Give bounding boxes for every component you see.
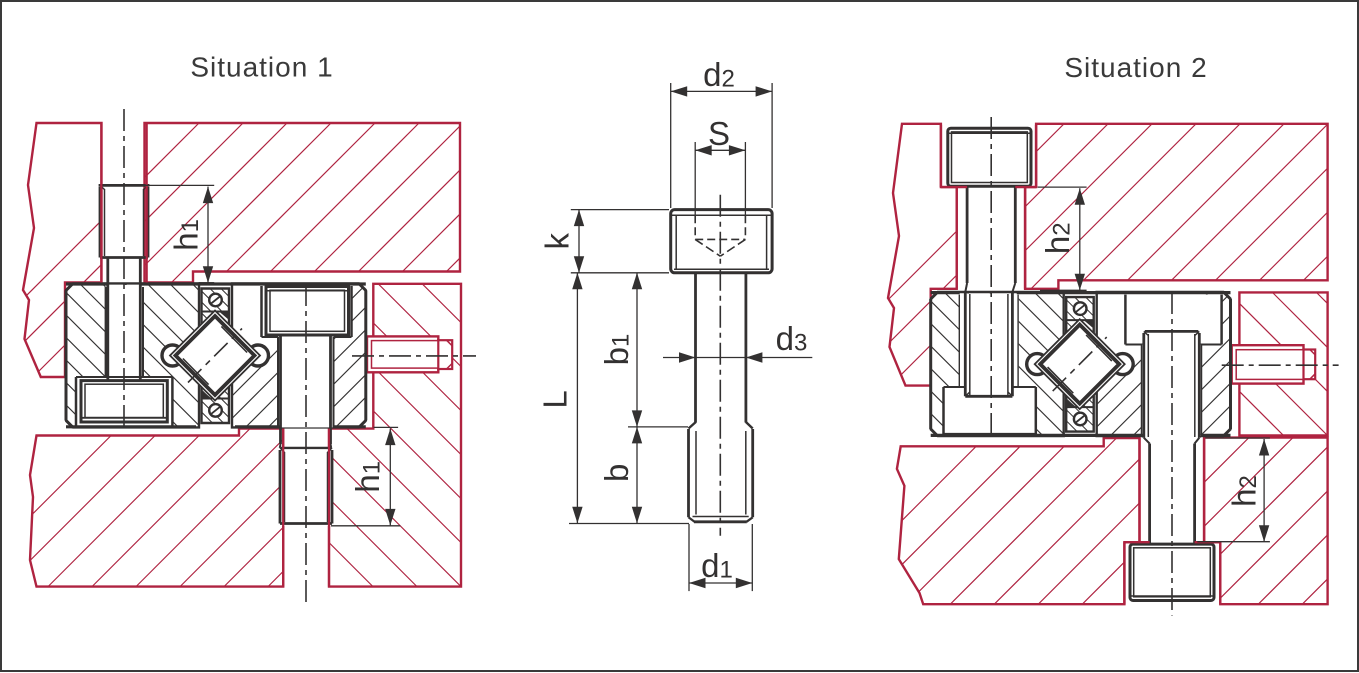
svg-text:S: S: [708, 115, 730, 152]
svg-text:b: b: [598, 464, 635, 482]
svg-text:k: k: [538, 232, 575, 249]
svg-text:Situation 1: Situation 1: [190, 52, 333, 83]
svg-text:L: L: [537, 390, 574, 408]
svg-text:Situation 2: Situation 2: [1064, 52, 1207, 83]
